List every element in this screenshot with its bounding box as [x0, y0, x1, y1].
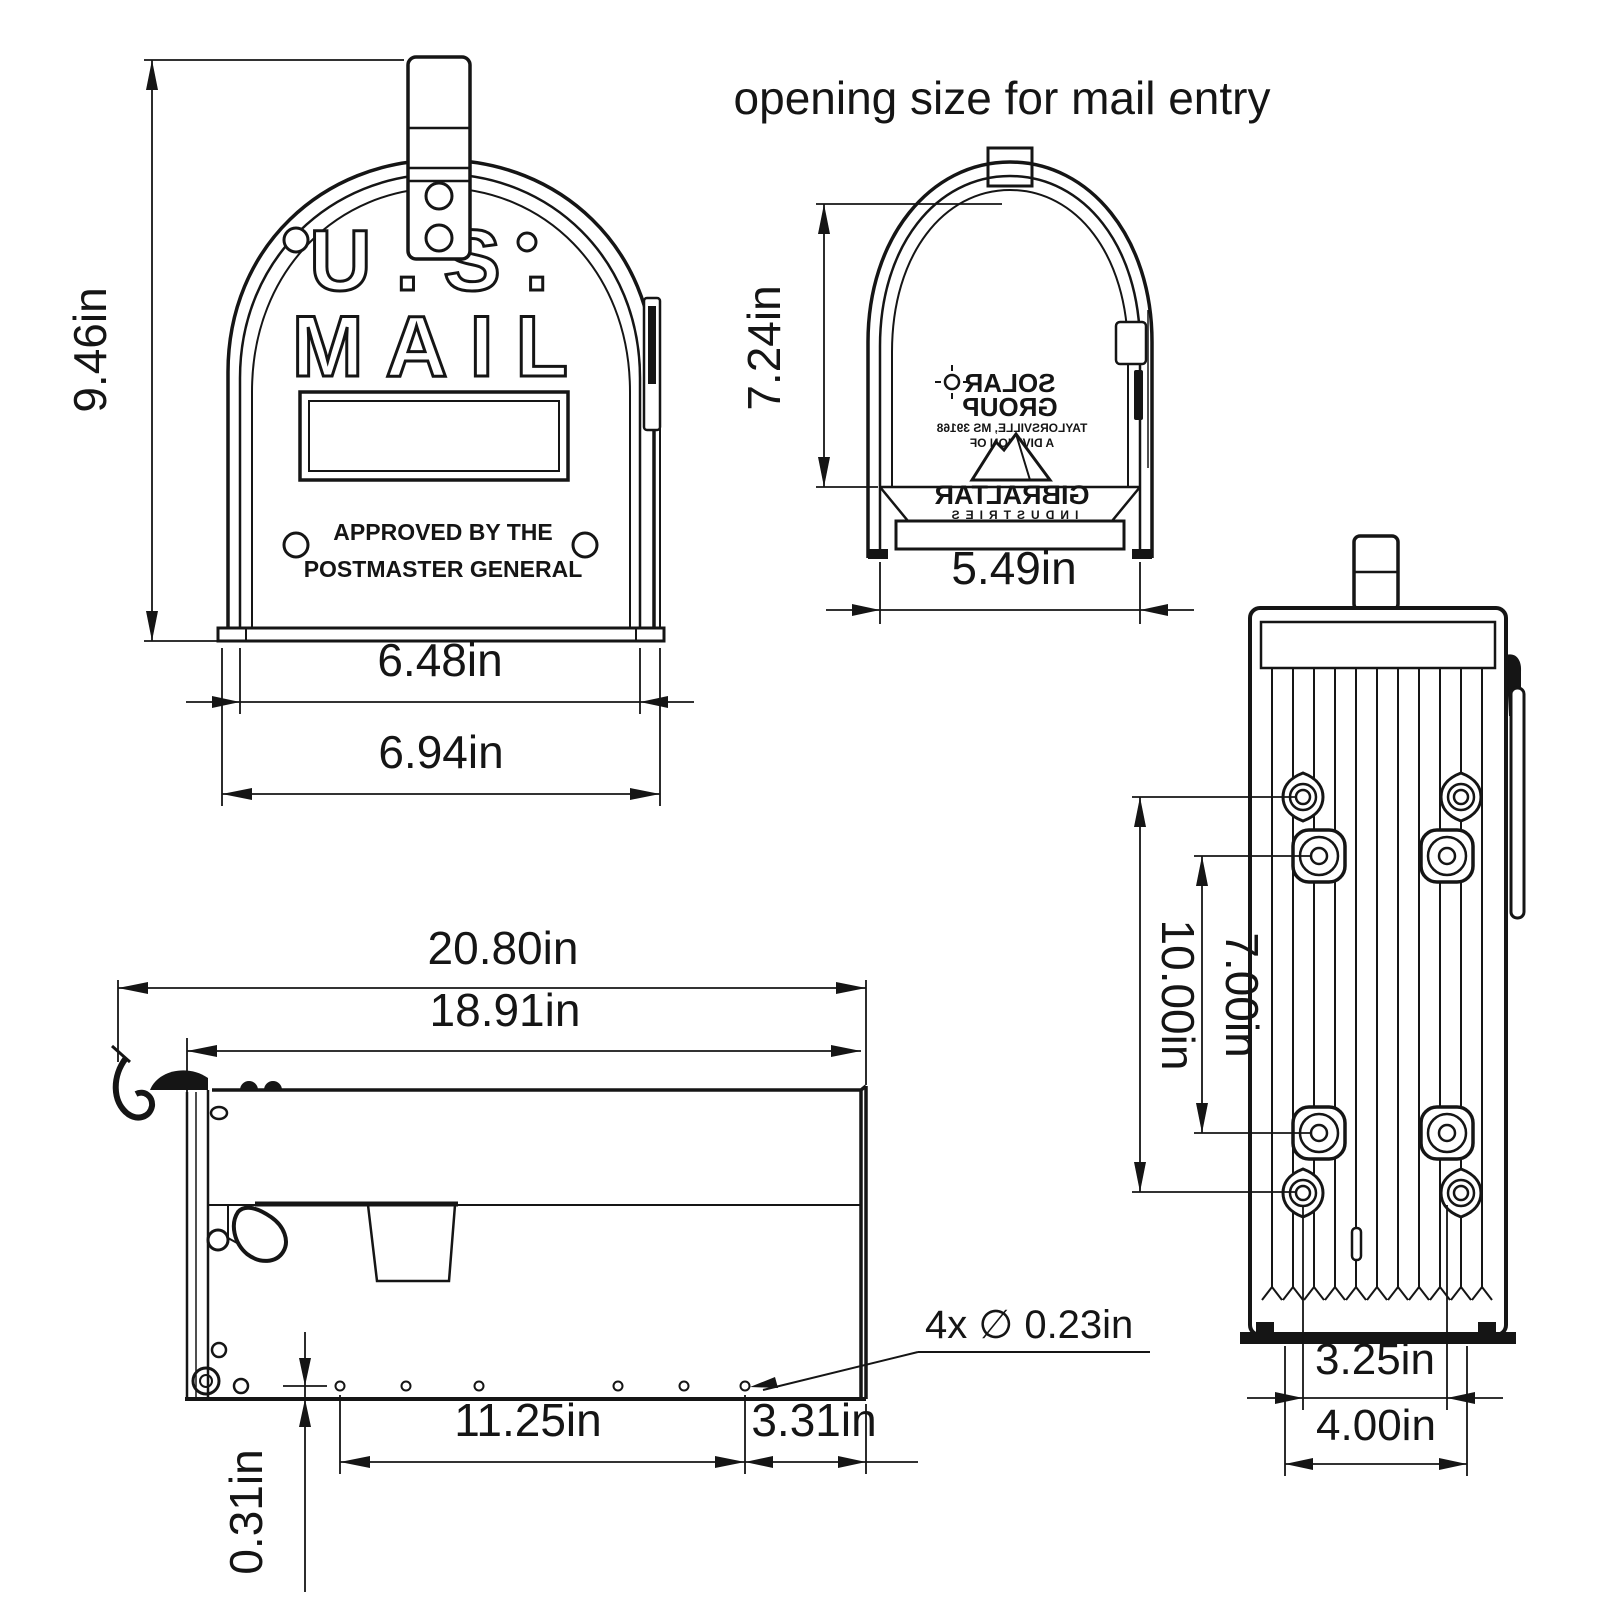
- approved-line2: POSTMASTER GENERAL: [304, 556, 583, 582]
- rivet-bottom-right: [573, 533, 597, 557]
- dim-side-edge-offset-label: 0.31in: [220, 1449, 272, 1574]
- strap-hole-top: [426, 183, 452, 209]
- dim-bottom-inner-holes-label: 7.00in: [1216, 932, 1268, 1057]
- sun-icon: [945, 375, 959, 389]
- opening-knob: [988, 148, 1032, 186]
- door-latch-tick: [112, 1046, 130, 1062]
- floor-holes: [336, 1382, 750, 1391]
- front-emboss-mail: MAIL: [292, 299, 590, 395]
- dim-side-rear: 3.31in: [745, 1394, 918, 1474]
- label-group: GROUP: [962, 392, 1057, 422]
- dim-opening-height: 7.24in: [738, 204, 1002, 487]
- side-door-edges: [187, 1090, 208, 1399]
- side-outline: [212, 1086, 866, 1399]
- rivet-bottom-left: [284, 533, 308, 557]
- dim-side-holes-span: 11.25in: [340, 1394, 745, 1474]
- side-hole-b: [234, 1379, 248, 1393]
- dim-side-overall-label: 20.80in: [428, 922, 579, 974]
- label-city: TAYLORSVILLE, MS 39168: [936, 421, 1087, 435]
- dim-front-door-width: 6.48in: [186, 634, 694, 714]
- dim-front-height-label: 9.46in: [64, 287, 116, 412]
- door-hole-top: [211, 1107, 227, 1119]
- approved-line1: APPROVED BY THE: [333, 519, 552, 545]
- dim-opening-width-label: 5.49in: [951, 542, 1076, 594]
- keyhole-upper-right: [1421, 830, 1473, 882]
- newspaper-hook-profile: [368, 1205, 455, 1281]
- side-view: 20.80in 18.91in: [112, 922, 1150, 1592]
- dim-side-holes-span-label: 11.25in: [454, 1394, 602, 1446]
- rivet-top-right: [518, 233, 536, 251]
- dim-side-body-label: 18.91in: [430, 984, 581, 1036]
- side-bolt-outer: [193, 1368, 219, 1394]
- opening-view: opening size for mail entry SOLAR GROUP …: [734, 72, 1271, 624]
- side-latch-lever: [1511, 688, 1524, 918]
- drawing-sheet: U.S. MAIL APPROVED BY THE POSTMASTER GEN…: [0, 0, 1600, 1600]
- bottom-view: 10.00in 7.00in 3.25in 4.00in: [1132, 536, 1524, 1476]
- flag-pivot: [208, 1230, 228, 1250]
- dim-bottom-slots-outer-label: 4.00in: [1316, 1401, 1436, 1450]
- bottom-foot-left: [1256, 1322, 1274, 1332]
- dim-side-edge-offset: 0.31in: [220, 1332, 327, 1592]
- front-view: U.S. MAIL APPROVED BY THE POSTMASTER GEN…: [64, 57, 694, 806]
- opening-latch: [1116, 322, 1146, 364]
- dim-front-door-width-label: 6.48in: [377, 634, 502, 686]
- side-bolt-inner: [200, 1375, 212, 1387]
- hole-callout-label: 4x ∅ 0.23in: [925, 1303, 1133, 1347]
- dim-bottom-outer-holes-label: 10.00in: [1152, 920, 1204, 1071]
- strap-hole-bottom: [426, 225, 452, 251]
- mount-hole-top-right: [1441, 773, 1481, 821]
- mailbox-dimension-drawing: U.S. MAIL APPROVED BY THE POSTMASTER GEN…: [0, 0, 1600, 1600]
- door-latch-cap: [150, 1070, 208, 1090]
- page-title: opening size for mail entry: [734, 72, 1271, 124]
- dim-front-overall-width-label: 6.94in: [378, 726, 503, 778]
- address-window-outer: [300, 392, 568, 480]
- bottom-center-slot: [1352, 1228, 1361, 1260]
- dim-side-rear-label: 3.31in: [751, 1394, 876, 1446]
- bottom-foot-right: [1478, 1322, 1496, 1332]
- hole-callout: 4x ∅ 0.23in: [750, 1303, 1150, 1390]
- rivet-top-left: [284, 228, 308, 252]
- opening-latch-bar: [1134, 370, 1143, 420]
- door-latch-curl: [116, 1058, 152, 1117]
- flag-lever: [234, 1208, 286, 1261]
- address-window-inner: [309, 401, 559, 471]
- dim-opening-height-label: 7.24in: [738, 285, 790, 410]
- dim-bottom-slots-inner-label: 3.25in: [1315, 1335, 1435, 1384]
- label-gibraltar: GIBRALTAR: [935, 480, 1090, 510]
- side-hole-a: [212, 1343, 226, 1357]
- front-latch-bar: [648, 306, 656, 384]
- keyhole-lower-right: [1421, 1107, 1473, 1159]
- mirrored-label: SOLAR GROUP TAYLORSVILLE, MS 39168 A DIV…: [935, 365, 1090, 522]
- dim-side-body: 18.91in: [187, 984, 861, 1092]
